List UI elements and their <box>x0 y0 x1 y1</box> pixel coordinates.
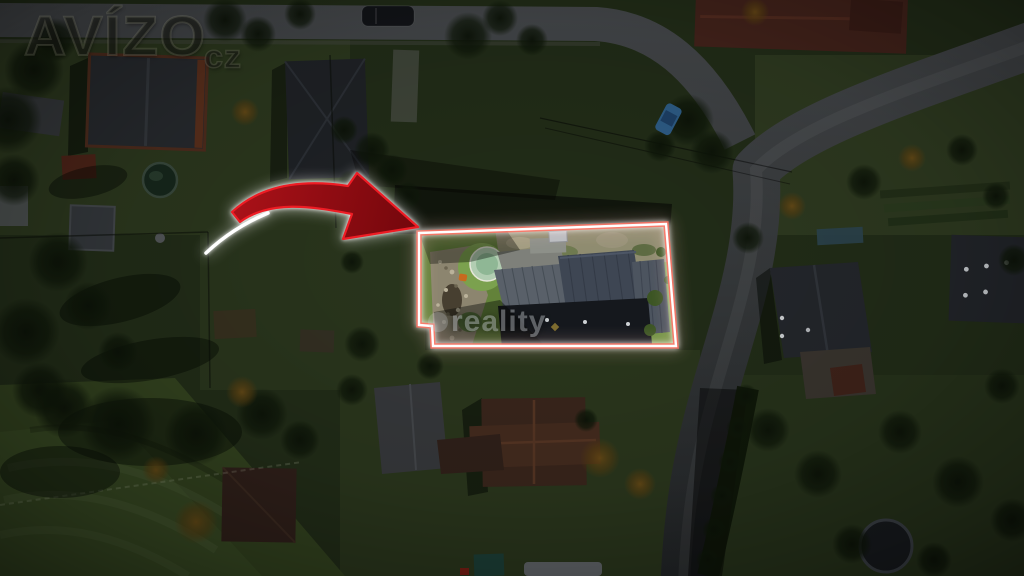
agency-text: reality <box>451 305 546 339</box>
aerial-photo: AVÍZOcz reality <box>0 0 1024 576</box>
agency-watermark: reality <box>428 305 558 339</box>
brand-text: AVÍZO <box>24 5 207 67</box>
scene-svg <box>0 0 1024 576</box>
brand-suffix: cz <box>204 39 242 75</box>
agency-logo-mark <box>428 312 448 332</box>
agency-accent-mark <box>551 323 559 331</box>
brand-watermark: AVÍZOcz <box>24 9 245 65</box>
white-trailer <box>549 231 568 243</box>
